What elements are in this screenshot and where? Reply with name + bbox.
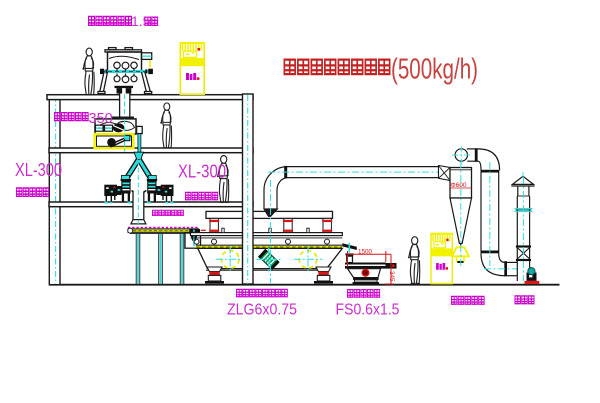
svg-text:350: 350	[89, 111, 113, 127]
svg-text:XL-300: XL-300	[15, 159, 62, 180]
svg-text:1500: 1500	[358, 248, 373, 255]
svg-text:FS0.6x1.5: FS0.6x1.5	[336, 302, 400, 319]
svg-text:(500kg/h): (500kg/h)	[391, 54, 478, 86]
svg-text:345: 345	[388, 271, 395, 282]
svg-text:XL-300: XL-300	[178, 162, 226, 182]
svg-text:ZLG6x0.75: ZLG6x0.75	[227, 302, 297, 319]
svg-text:1.5: 1.5	[131, 13, 151, 29]
